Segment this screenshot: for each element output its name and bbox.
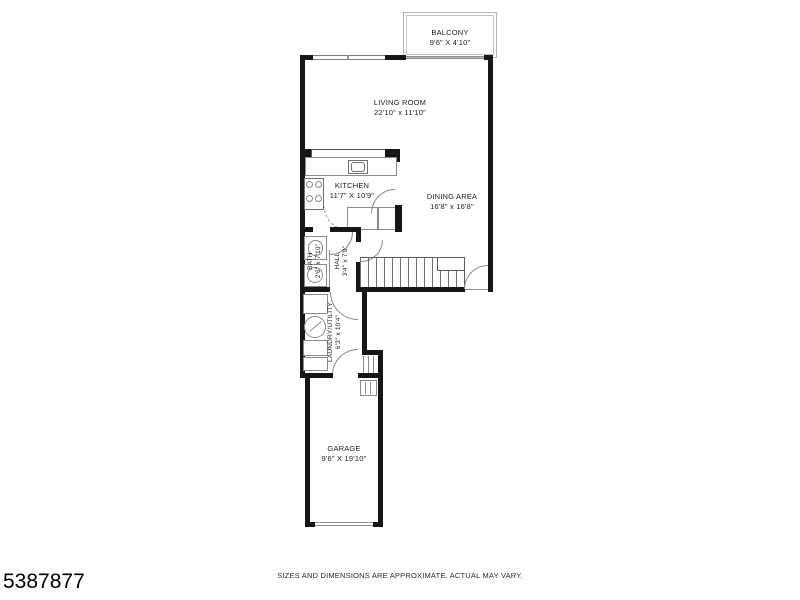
water-heater-line xyxy=(365,382,366,394)
dining-area-label: DINING AREA 16'8" x 16'8" xyxy=(402,192,502,212)
wall-top-2 xyxy=(385,55,406,60)
water-heater-line xyxy=(370,382,371,394)
balcony-slider-line-2 xyxy=(406,58,484,59)
kitchen-label: KITCHEN 11'7" X 10'9" xyxy=(312,181,392,201)
room-dimensions: 11'7" X 10'9" xyxy=(312,191,392,201)
room-name: LAUNDRY/UTILITY xyxy=(327,297,335,367)
balcony-label: BALCONY 9'6" X 4'10" xyxy=(400,28,500,48)
living-room-label: LIVING ROOM 22'10" x 11'10" xyxy=(340,98,460,118)
wall-kitchen-stub-right xyxy=(395,205,402,232)
room-name: GARAGE xyxy=(304,444,384,454)
laundry-label: LAUNDRY/UTILITY 6'3" x 10'4" xyxy=(327,297,345,367)
wall-bottom-stairs xyxy=(356,287,465,292)
room-dimensions: 3'4" x 7'9" xyxy=(342,236,350,286)
entry-threshold xyxy=(465,289,488,290)
garage-steps xyxy=(363,356,378,373)
garage-door-line-2 xyxy=(315,525,373,526)
wall-garage-bottom-1 xyxy=(305,522,315,527)
disclaimer-text: SIZES AND DIMENSIONS ARE APPROXIMATE. AC… xyxy=(0,571,800,580)
room-dimensions: 9'6" X 4'10" xyxy=(400,38,500,48)
entry-door-arc xyxy=(464,265,488,289)
wall-garage-bottom-2 xyxy=(373,522,383,527)
living-room-window xyxy=(313,55,385,60)
utility-shelf xyxy=(303,357,328,371)
balcony-slider-line-1 xyxy=(406,56,484,57)
room-name: KITCHEN xyxy=(312,181,392,191)
room-name: DINING AREA xyxy=(402,192,502,202)
stair-landing xyxy=(437,257,465,271)
room-dimensions: 16'8" x 16'8" xyxy=(402,202,502,212)
room-dimensions: 6'3" x 10'4" xyxy=(335,297,343,367)
bath-label: BATH 2'6" x 7'10" xyxy=(307,236,325,286)
wall-right-main xyxy=(488,55,493,292)
hall-label: HALL 3'4" x 7'9" xyxy=(334,236,352,286)
room-name: BATH xyxy=(307,236,315,286)
listing-id: 5387877 xyxy=(3,570,85,594)
washer-unit xyxy=(303,294,328,314)
water-heater xyxy=(360,380,377,396)
wall-bath-top-1 xyxy=(300,227,313,232)
window-mullion xyxy=(347,55,349,60)
floor-plan: BALCONY 9'6" X 4'10" LIVING ROOM 22'10" … xyxy=(0,0,800,600)
room-name: BALCONY xyxy=(400,28,500,38)
room-name: LIVING ROOM xyxy=(340,98,460,108)
bath-hall-divider xyxy=(329,250,330,292)
garage-label: GARAGE 9'6" X 19'10" xyxy=(304,444,384,464)
kitchen-sink-basin xyxy=(351,162,365,172)
wall-laundry-right xyxy=(362,292,367,354)
dryer-unit xyxy=(303,340,328,356)
room-name: HALL xyxy=(334,236,342,286)
room-dimensions: 22'10" x 11'10" xyxy=(340,108,460,118)
room-dimensions: 2'6" x 7'10" xyxy=(315,236,323,286)
garage-door-line-1 xyxy=(315,522,373,523)
room-dimensions: 9'6" X 19'10" xyxy=(304,454,384,464)
